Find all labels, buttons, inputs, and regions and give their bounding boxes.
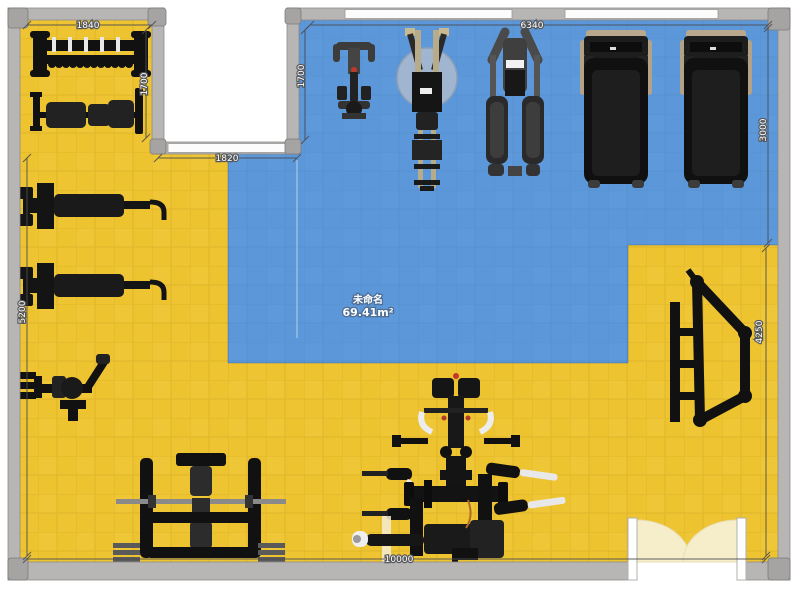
wall-right[interactable] bbox=[778, 8, 790, 580]
post-top-right bbox=[768, 8, 790, 30]
window-notch[interactable] bbox=[168, 144, 287, 153]
wall-alcove-right[interactable] bbox=[152, 8, 164, 154]
door-jamb-right bbox=[737, 518, 746, 580]
wall-top-alcove[interactable] bbox=[8, 8, 164, 20]
dim-label-10000: 10000 bbox=[385, 555, 414, 565]
dim-label-3000: 3000 bbox=[759, 118, 769, 141]
dim-label-1840: 1840 bbox=[77, 21, 100, 31]
floor-plan-stage: 1840 1700 1700 1820 6340 3000 4250 5200 … bbox=[0, 0, 800, 596]
treadmill-1[interactable] bbox=[580, 30, 652, 188]
zone-area-value: 69.41m² bbox=[342, 306, 393, 319]
post-bottom-right bbox=[768, 558, 790, 580]
post-alcove-right-top bbox=[148, 8, 166, 26]
dim-label-1820: 1820 bbox=[216, 154, 239, 164]
wall-bottom-left-of-door[interactable] bbox=[8, 562, 632, 580]
zone-title: 未命名 bbox=[352, 293, 383, 306]
wall-left[interactable] bbox=[8, 8, 20, 580]
floor-plan-canvas[interactable]: 1840 1700 1700 1820 6340 3000 4250 5200 … bbox=[0, 0, 800, 596]
window-top-2[interactable] bbox=[565, 10, 718, 19]
post-zone-left-bottom bbox=[285, 139, 301, 154]
dim-label-6340: 6340 bbox=[521, 21, 544, 31]
dim-label-5200: 5200 bbox=[18, 300, 28, 323]
post-zone-left-top bbox=[285, 8, 301, 24]
dim-label-4250: 4250 bbox=[755, 320, 765, 343]
post-top-left bbox=[8, 8, 28, 28]
dim-label-1700-alcove: 1700 bbox=[140, 72, 150, 95]
door-jamb-left bbox=[628, 518, 637, 580]
treadmill-2[interactable] bbox=[680, 30, 752, 188]
post-alcove-right-bottom bbox=[150, 139, 166, 154]
floor-layer bbox=[20, 20, 778, 562]
dim-label-1700-zone: 1700 bbox=[297, 64, 307, 87]
window-top-1[interactable] bbox=[345, 10, 512, 19]
